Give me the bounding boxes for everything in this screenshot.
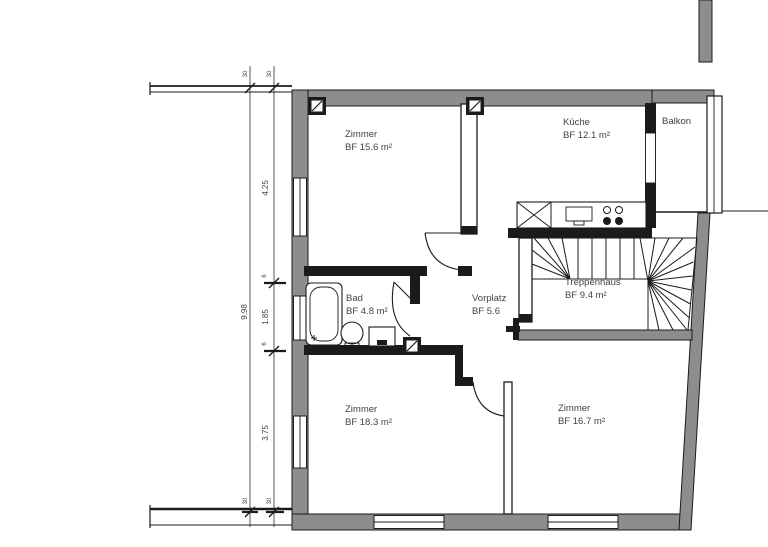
wall-balcony-top xyxy=(652,90,714,103)
label-zimmer-bottom-left-name: Zimmer xyxy=(345,404,377,415)
entry-door-jamb xyxy=(506,318,520,340)
dim-total: 9.98 xyxy=(240,304,249,320)
wall-bottom xyxy=(292,514,690,530)
label-kueche-area: BF 12.1 m² xyxy=(563,130,610,141)
dim-wall-bottom-right: 30 xyxy=(267,497,273,504)
shaft-icon xyxy=(403,337,421,355)
shaft-icon xyxy=(466,97,484,115)
label-treppenhaus-area: BF 9.4 m² xyxy=(565,290,607,301)
floor-plan-page: 9.98 4.25 1.85 3.75 6 6 30 30 30 30 xyxy=(0,0,768,547)
toilet xyxy=(369,327,395,346)
window-bottom-2 xyxy=(548,516,618,529)
door-zimmer-bottom xyxy=(473,382,504,416)
dim-wall-small-2: 6 xyxy=(262,342,268,346)
stair-fan-left xyxy=(532,238,570,279)
label-zimmer-top-name: Zimmer xyxy=(345,129,377,140)
dim-wall-bottom-left: 30 xyxy=(243,497,249,504)
label-treppenhaus-name: Treppenhaus xyxy=(565,277,621,288)
wall-kueche-balkon xyxy=(645,103,656,228)
window-left-1 xyxy=(294,178,307,236)
label-kueche-name: Küche xyxy=(563,117,590,128)
label-bad-name: Bad xyxy=(346,293,363,304)
label-balkon-name: Balkon xyxy=(662,116,691,127)
dim-wall-top-right: 30 xyxy=(267,70,273,77)
wall-bottom-rooms-divider xyxy=(504,382,512,514)
dim-wall-top-left: 30 xyxy=(243,70,249,77)
shaft-icon xyxy=(308,97,326,115)
dim-wall-small-1: 6 xyxy=(262,274,268,278)
wall-bad-right xyxy=(410,266,420,304)
bathtub xyxy=(306,283,342,345)
label-zimmer-bottom-left-area: BF 18.3 m² xyxy=(345,417,392,428)
wall-neighbor-top-right xyxy=(699,0,712,62)
wall-vorplatz-jog-nub xyxy=(455,377,473,386)
wall-zimmer-top-bottom-left xyxy=(304,266,427,276)
label-zimmer-bottom-right-name: Zimmer xyxy=(558,403,590,414)
wall-treppenhaus-left xyxy=(519,238,532,322)
dim-segment-bottom: 3.75 xyxy=(261,425,270,441)
dim-segment-top: 4.25 xyxy=(261,180,270,196)
label-zimmer-top-area: BF 15.6 m² xyxy=(345,142,392,153)
door-zimmer-top xyxy=(425,233,461,270)
doors xyxy=(392,233,504,416)
dimension-chain: 9.98 4.25 1.85 3.75 6 6 30 30 30 30 xyxy=(240,66,286,527)
label-vorplatz-name: Vorplatz xyxy=(472,293,507,304)
wall-treppenhaus-bottom xyxy=(518,330,692,340)
kitchen-counter xyxy=(517,202,646,228)
wall-kueche-bottom xyxy=(508,228,652,238)
floor-plan-drawing: 9.98 4.25 1.85 3.75 6 6 30 30 30 30 xyxy=(0,0,768,547)
dim-segment-middle: 1.85 xyxy=(261,309,270,325)
label-zimmer-bottom-right-area: BF 16.7 m² xyxy=(558,416,605,427)
balcony-glazing xyxy=(707,96,722,213)
washbasin xyxy=(341,322,363,349)
wall-kueche-zimmer xyxy=(461,104,477,234)
wall-zimmer-top-bottom-right xyxy=(458,266,472,276)
label-vorplatz-area: BF 5.6 xyxy=(472,306,500,317)
window-bottom-1 xyxy=(374,516,444,529)
label-bad-area: BF 4.8 m² xyxy=(346,306,388,317)
window-left-2 xyxy=(294,296,307,340)
window-left-3 xyxy=(294,416,307,468)
